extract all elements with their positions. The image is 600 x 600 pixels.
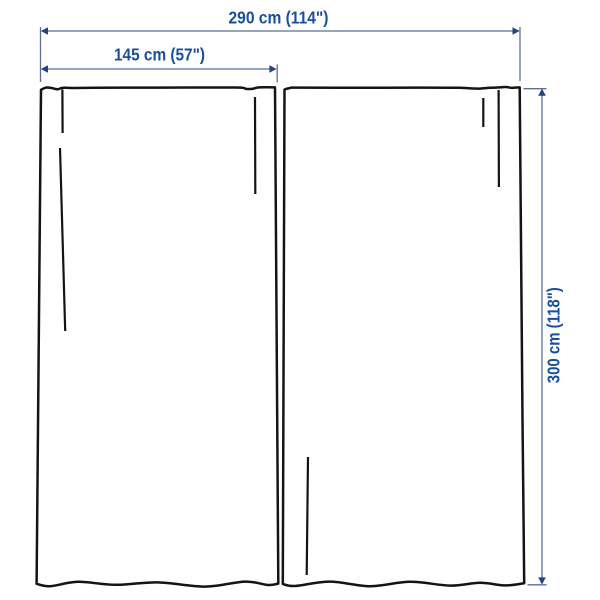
svg-text:300 cm (118"): 300 cm (118") xyxy=(544,287,564,383)
svg-text:290 cm (114"): 290 cm (114") xyxy=(229,7,329,27)
svg-text:145 cm (57"): 145 cm (57") xyxy=(114,44,205,64)
